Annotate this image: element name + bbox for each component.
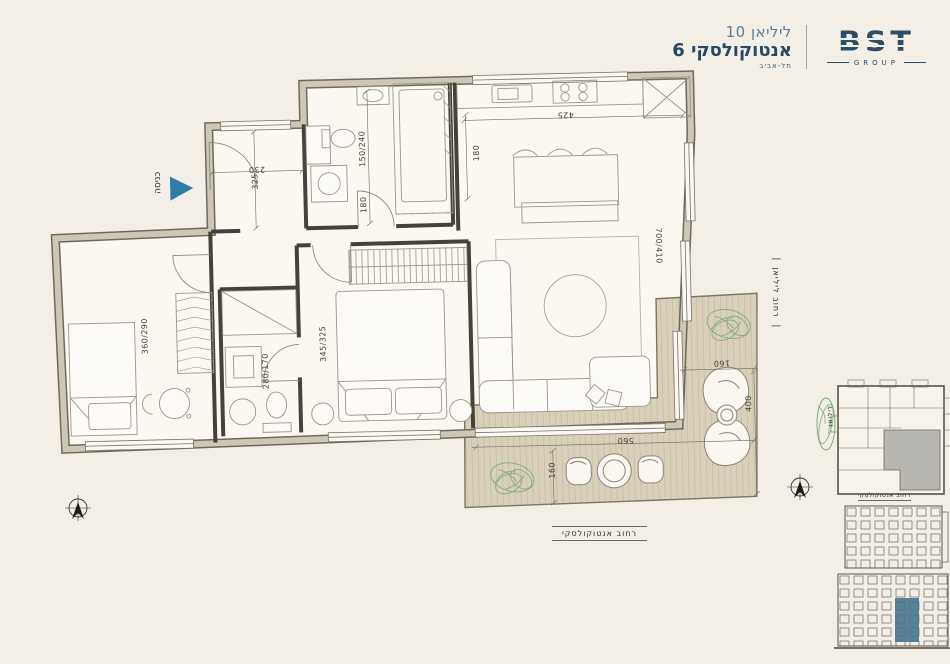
dimension-label: 700/410	[654, 228, 664, 264]
street-caption-bottom: רחוב אנטוקולסקי	[552, 526, 647, 541]
dimension-label: 180	[472, 145, 481, 162]
entrance-arrow-icon	[170, 176, 194, 201]
dimension-label: 280/170	[261, 353, 271, 389]
dimension-label: 345/325	[318, 326, 328, 362]
dimension-label: 400	[744, 395, 753, 412]
dimension-label: 425	[557, 110, 574, 119]
dimension-label: 560	[617, 436, 634, 445]
site-plan-street-caption: רחוב אנטוקולסקי	[858, 492, 911, 501]
floor-plan-wrapper: 230325150/240180425180700/410360/290345/…	[0, 0, 950, 660]
dimension-label: 360/290	[140, 318, 150, 354]
dimension-label: 160	[548, 462, 557, 479]
site-plan-plant-label: ליליאן	[827, 405, 834, 426]
dimension-label: 160	[713, 358, 730, 367]
entrance-label: כניסה	[153, 172, 164, 194]
dimension-label: 325	[250, 173, 259, 190]
dimension-label: 150/240	[357, 131, 367, 167]
dimension-label: 180	[359, 197, 368, 214]
floorplan-page: ליליאן 10 אנטוקולסקי 6 תל-אביב BST GROUP	[0, 0, 950, 650]
street-caption-right: רחוב ליליאן	[772, 258, 781, 326]
